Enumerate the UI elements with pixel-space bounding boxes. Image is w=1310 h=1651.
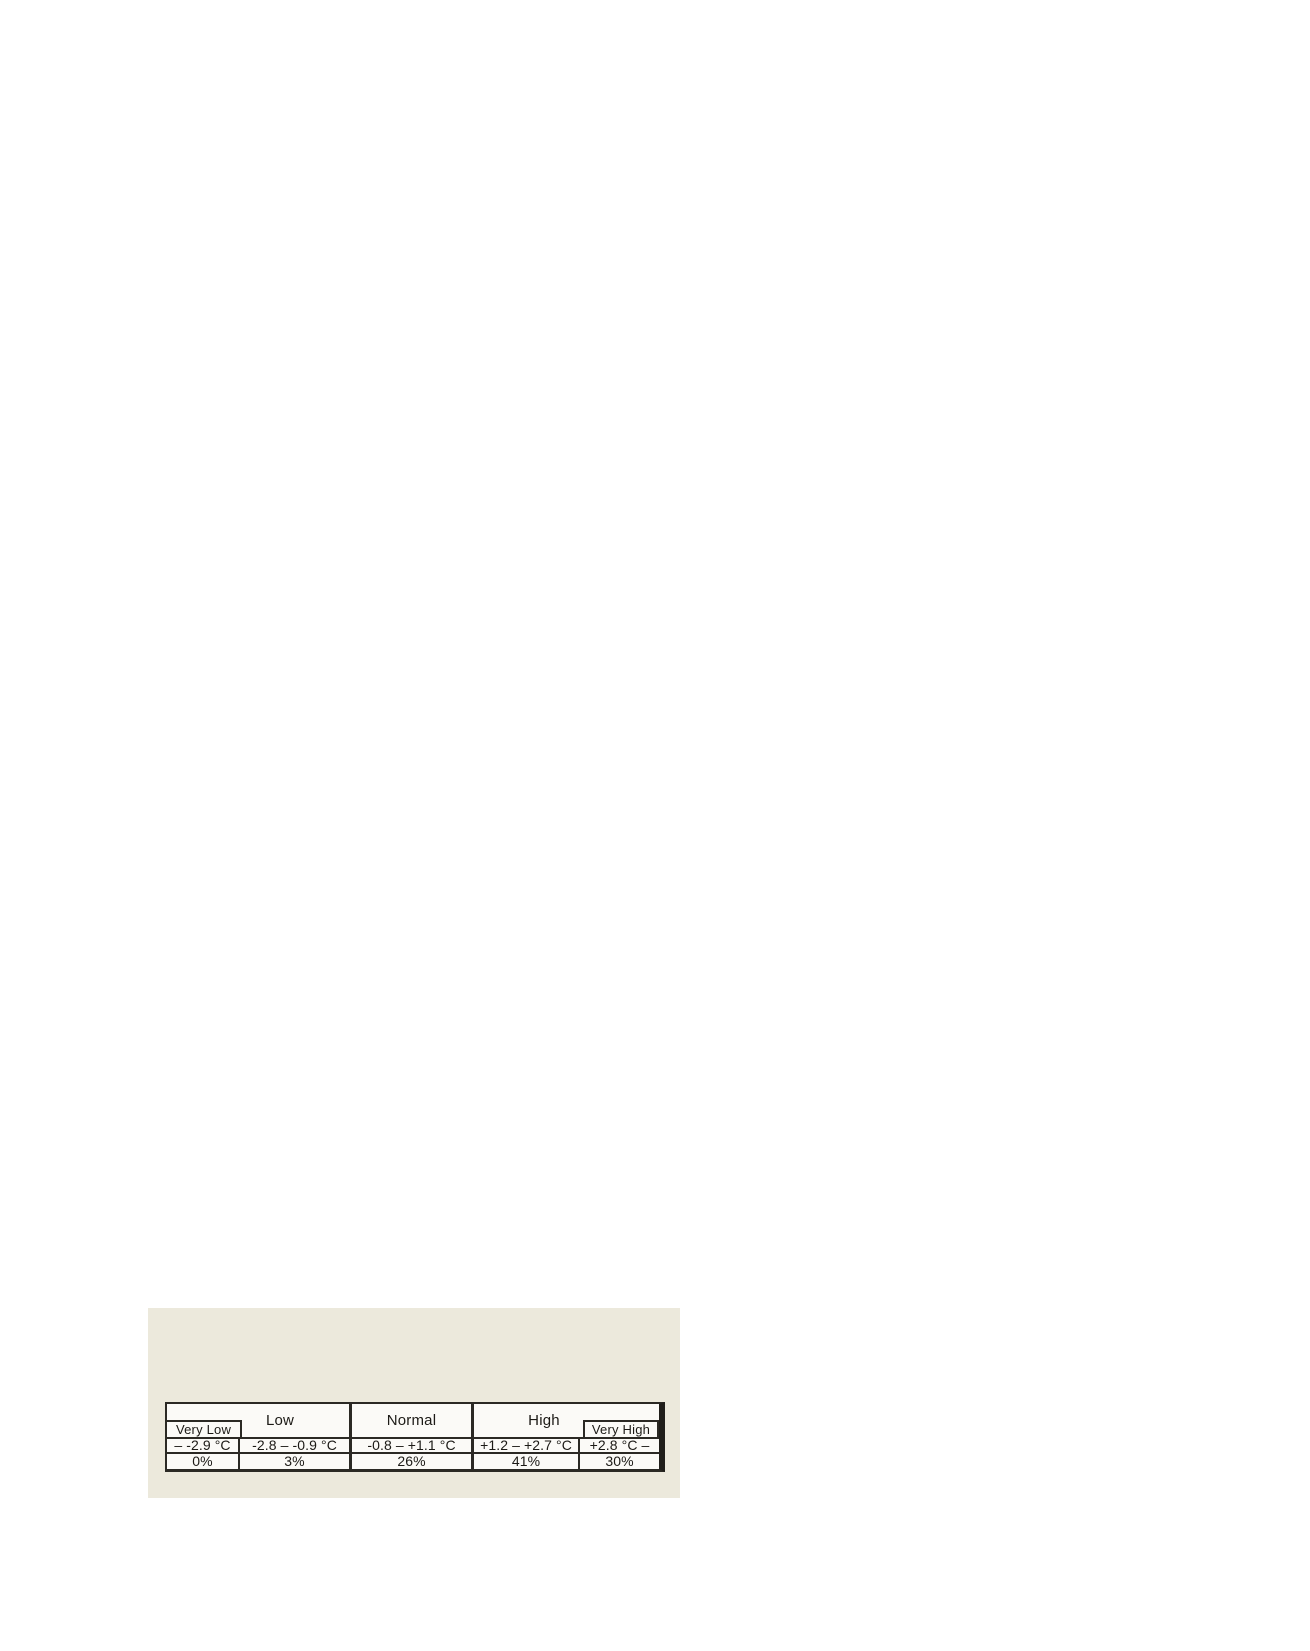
range-cell-very-low: – -2.9 °C [167, 1439, 238, 1452]
header-label-normal: Normal [352, 1408, 471, 1434]
probability-cell-very-low: 0% [167, 1454, 238, 1469]
probability-cell-normal: 26% [352, 1454, 471, 1469]
document-page: { "figure": { "labels": { "very_low": "V… [0, 0, 1310, 1651]
range-cell-very-high: +2.8 °C – [580, 1439, 659, 1452]
probability-cell-high: 41% [474, 1454, 578, 1469]
probability-forecast-table: Low Normal High Very Low Very High – -2.… [165, 1402, 665, 1472]
range-cell-normal: -0.8 – +1.1 °C [352, 1439, 471, 1452]
table-vline-normal-high [471, 1404, 474, 1437]
probability-cell-low: 3% [240, 1454, 349, 1469]
very-high-label-box: Very High [583, 1420, 659, 1439]
range-cell-low: -2.8 – -0.9 °C [240, 1439, 349, 1452]
very-low-label-box: Very Low [165, 1420, 242, 1439]
header-label-very-low: Very Low [176, 1422, 231, 1437]
header-label-very-high: Very High [592, 1422, 650, 1437]
range-cell-high: +1.2 – +2.7 °C [474, 1439, 578, 1452]
figure-panel: Low Normal High Very Low Very High – -2.… [148, 1308, 680, 1498]
probability-cell-very-high: 30% [580, 1454, 659, 1469]
